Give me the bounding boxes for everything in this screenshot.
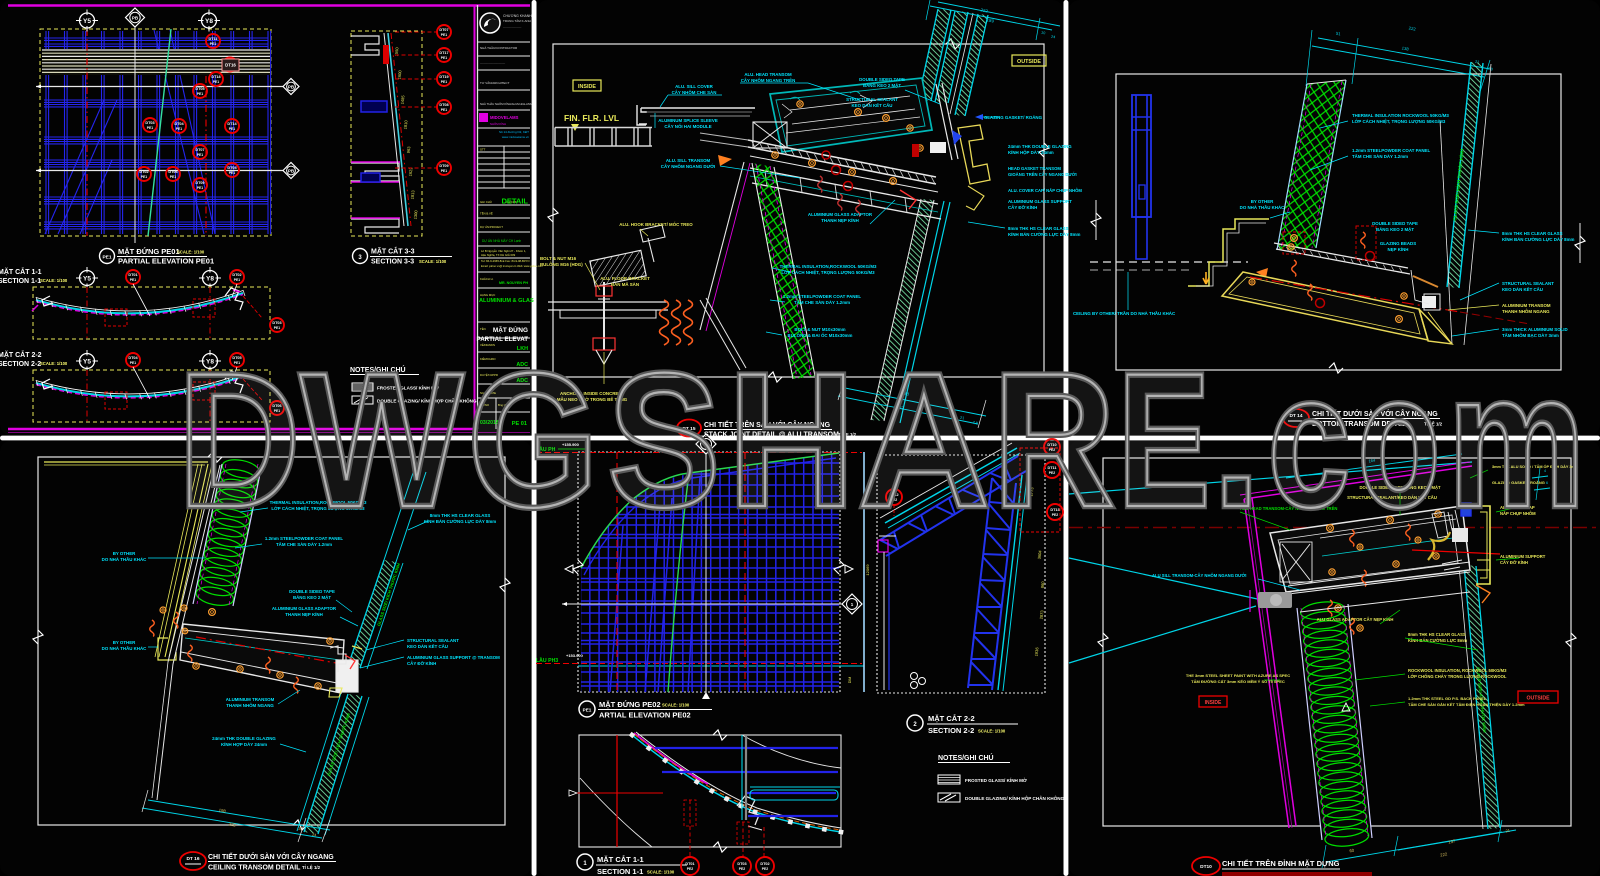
svg-text:PE1: PE1 — [197, 153, 204, 157]
svg-text:PE1: PE1 — [141, 175, 148, 179]
svg-text:BY OTHER: BY OTHER — [113, 551, 136, 556]
svg-text:DT04: DT04 — [227, 166, 237, 170]
svg-text:INSIDE: INSIDE — [578, 84, 596, 90]
svg-text:21: 21 — [1505, 829, 1510, 834]
svg-text:CEILING TRANSOM DETAIL: CEILING TRANSOM DETAIL — [208, 865, 301, 872]
svg-text:SCALE: 1/100: SCALE: 1/100 — [419, 259, 447, 264]
svg-text:ALU SILL TRANSOM-CÂY NHÔM NGAN: ALU SILL TRANSOM-CÂY NHÔM NGANG DƯỚI — [1152, 573, 1246, 578]
svg-text:THANH NẸP KÍNH: THANH NẸP KÍNH — [821, 218, 859, 223]
svg-text:DT18: DT18 — [211, 75, 220, 79]
svg-text:MẶT ĐỨNG: MẶT ĐỨNG — [493, 325, 528, 334]
svg-text:KÍNH HỢP DÀY 24mm: KÍNH HỢP DÀY 24mm — [221, 742, 267, 747]
svg-text:PB: PB — [132, 16, 139, 21]
svg-text:MIDOVELAMS: MIDOVELAMS — [490, 115, 519, 120]
svg-text:PE1: PE1 — [213, 80, 220, 84]
svg-text:CÂY NHÔM CHE SÀN: CÂY NHÔM CHE SÀN — [672, 90, 717, 95]
svg-text:DT17: DT17 — [439, 51, 448, 55]
svg-text:BĂNG KEO 2 MẶT: BĂNG KEO 2 MẶT — [1376, 227, 1414, 232]
svg-text:BĂNG KEO 2 MẶT: BĂNG KEO 2 MẶT — [293, 595, 331, 600]
svg-text:THERMAL INSULATION,ROCKWOOL 50: THERMAL INSULATION,ROCKWOOL 50KG/M3 — [780, 264, 877, 269]
svg-text:MẶT ĐỨNG PE01: MẶT ĐỨNG PE01 — [118, 247, 180, 256]
svg-text:SCALE: 1/100: SCALE: 1/100 — [978, 729, 1006, 734]
svg-text:BOLT & NUT M16: BOLT & NUT M16 — [540, 256, 577, 261]
svg-text:NHÔM KÍNH: NHÔM KÍNH — [490, 121, 506, 126]
svg-text:DT03: DT03 — [272, 321, 281, 325]
svg-text:D: D — [178, 334, 300, 547]
svg-text:CÂY ĐỠ KÍNH: CÂY ĐỠ KÍNH — [1008, 205, 1037, 210]
svg-text:SCALE: 1/100: SCALE: 1/100 — [647, 870, 675, 875]
svg-text:OUTSIDE: OUTSIDE — [1526, 696, 1550, 702]
svg-text:FROSTED GLASS/ KÍNH MỜ: FROSTED GLASS/ KÍNH MỜ — [965, 776, 1027, 783]
svg-text:BY OTHER: BY OTHER — [113, 640, 136, 645]
svg-text:PE1: PE1 — [130, 361, 137, 365]
svg-text:DT07: DT07 — [195, 148, 204, 152]
svg-text:PE1: PE1 — [234, 278, 241, 282]
svg-text:12069: 12069 — [865, 564, 870, 576]
svg-text:STRUCTURAL SEALANT: STRUCTURAL SEALANT — [1502, 281, 1554, 286]
svg-text:MẶT ĐỨNG PE02: MẶT ĐỨNG PE02 — [599, 700, 661, 709]
svg-text:SECTION 1-1: SECTION 1-1 — [0, 278, 41, 285]
svg-text:24: 24 — [1051, 35, 1056, 40]
svg-text:DT19: DT19 — [439, 75, 448, 79]
svg-text:SCALE: 1/100: SCALE: 1/100 — [662, 703, 690, 708]
svg-text:.: . — [1213, 334, 1260, 547]
svg-text:___________: ___________ — [502, 24, 522, 28]
svg-text:24mm THK DOUBLE GLAZING: 24mm THK DOUBLE GLAZING — [1008, 144, 1072, 149]
svg-text:PE1: PE1 — [274, 326, 281, 330]
svg-text:THERMAL INSULATION ROCKWOOL 50: THERMAL INSULATION ROCKWOOL 50KG/M3 — [1352, 113, 1449, 118]
svg-text:TẤM CHE SÀN DÀY 1.2mm: TẤM CHE SÀN DÀY 1.2mm — [794, 300, 850, 305]
svg-text:2873: 2873 — [1039, 609, 1045, 619]
svg-text:MR. NGUYEN PH: MR. NGUYEN PH — [499, 281, 528, 285]
svg-text:Y5: Y5 — [83, 359, 91, 366]
svg-text:STRUCTURAL SEALANT: STRUCTURAL SEALANT — [846, 97, 898, 102]
svg-text:KEO DÁN KẾT CẤU: KEO DÁN KẾT CẤU — [852, 103, 893, 108]
svg-text:DT01: DT01 — [685, 862, 694, 866]
svg-text:ALUMINIUM SUPPORT: ALUMINIUM SUPPORT — [1500, 554, 1546, 559]
svg-text:DT01: DT01 — [128, 273, 137, 277]
svg-text:8mm THK HS CLEAR GLASS: 8mm THK HS CLEAR GLASS — [1008, 226, 1069, 231]
svg-text:1.2mm THK STEEL GD P.S. BACK P: 1.2mm THK STEEL GD P.S. BACK PANEL — [1408, 696, 1487, 701]
svg-text:CÂY ĐỠ KÍNH: CÂY ĐỠ KÍNH — [1500, 560, 1528, 565]
svg-text:ARTIAL ELEVATION PE02: ARTIAL ELEVATION PE02 — [599, 711, 691, 720]
svg-text:1813: 1813 — [410, 189, 416, 199]
svg-text:GIOĂNG TRÊN CÂY NGANG DƯỚI: GIOĂNG TRÊN CÂY NGANG DƯỚI — [1008, 172, 1077, 177]
svg-text:CHƯƠNG KHANH: CHƯƠNG KHANH — [503, 14, 532, 18]
svg-text:THE 3mm STEEL SHEET PAINT WITH: THE 3mm STEEL SHEET PAINT WITH AZURE AS … — [1186, 673, 1290, 678]
svg-text:NHÀ THẦU/CONTRACTOR: NHÀ THẦU/CONTRACTOR — [480, 46, 518, 50]
svg-text:DETAIL: DETAIL — [501, 197, 528, 206]
svg-text:THANH NẸP KÍNH: THANH NẸP KÍNH — [285, 612, 323, 617]
svg-text:CÂY ĐỠ KÍNH: CÂY ĐỠ KÍNH — [407, 661, 436, 666]
svg-text:ALU. HOOK BRACKET/ MÓC TREO: ALU. HOOK BRACKET/ MÓC TREO — [619, 222, 693, 227]
svg-text:LỚP CHỐNG CHÁY TRONG LƯỢNG ROC: LỚP CHỐNG CHÁY TRONG LƯỢNG ROCKWOOL — [1408, 674, 1507, 679]
svg-text:Y5: Y5 — [83, 276, 91, 283]
svg-text:PE1: PE1 — [229, 127, 236, 131]
svg-text:A: A — [858, 334, 990, 547]
svg-text:DT04: DT04 — [128, 356, 138, 360]
svg-text:ALUMINIUM TRANSOM: ALUMINIUM TRANSOM — [1502, 303, 1551, 308]
svg-text:KÍNH BÁN CƯỜNG LỰC DÀY 8mm: KÍNH BÁN CƯỜNG LỰC DÀY 8mm — [1502, 237, 1575, 242]
svg-text:Tel: 84-9-2965-B-E Fax: 84-9-: Tel: 84-9-2965-B-E Fax: 84-9-08-B3YO — [481, 259, 530, 263]
svg-text:SCALE: 1/100: SCALE: 1/100 — [177, 250, 205, 255]
svg-text:SCALE: 1/100: SCALE: 1/100 — [40, 278, 68, 283]
svg-text:PE1: PE1 — [441, 80, 448, 84]
svg-text:PE1: PE1 — [441, 33, 448, 37]
svg-text:PE1: PE1 — [102, 255, 111, 261]
svg-text:Y5: Y5 — [83, 18, 91, 25]
svg-text:DT02: DT02 — [139, 170, 148, 174]
svg-text:LỚP CÁCH NHIỆT, TRỌNG LƯỢNG 50: LỚP CÁCH NHIỆT, TRỌNG LƯỢNG 50KG/M3 — [781, 270, 875, 275]
svg-text:TRUNG TÂM K.ANH: TRUNG TÂM K.ANH — [503, 18, 531, 23]
svg-text:PE2: PE2 — [762, 867, 769, 871]
svg-text:PE1: PE1 — [176, 127, 183, 131]
svg-text:DT08: DT08 — [439, 103, 448, 107]
svg-text:TÊN: TÊN — [480, 326, 486, 331]
svg-text:DOUBLE SIDED TAPE: DOUBLE SIDED TAPE — [289, 589, 335, 594]
svg-text:24: 24 — [312, 833, 317, 838]
svg-text:BULÔNG M16 (HDG): BULÔNG M16 (HDG) — [540, 262, 583, 267]
svg-text:TÊN B.VẼ: TÊN B.VẼ — [480, 211, 493, 216]
svg-text:Y8: Y8 — [206, 276, 214, 283]
svg-text:PB: PB — [288, 85, 295, 90]
svg-text:MẶT CẮT 1-1: MẶT CẮT 1-1 — [597, 855, 644, 864]
svg-text:ALUMINIUM TRANSOM: ALUMINIUM TRANSOM — [226, 697, 275, 702]
svg-text:KÍNH BÁN CƯỜNG LỰC 8mm: KÍNH BÁN CƯỜNG LỰC 8mm — [1408, 638, 1467, 643]
svg-text:PE1: PE1 — [441, 108, 448, 112]
svg-text:SCALE: 1/100: SCALE: 1/100 — [40, 361, 68, 366]
svg-text:1810: 1810 — [403, 119, 409, 129]
svg-text:KÍNH BÁN CƯỜNG LỰC DÀY 8mm: KÍNH BÁN CƯỜNG LỰC DÀY 8mm — [1008, 232, 1081, 237]
svg-text:BĂNG KEO 2 MẶT: BĂNG KEO 2 MẶT — [863, 83, 901, 88]
svg-text:MẶT CẮT 2-2: MẶT CẮT 2-2 — [0, 350, 42, 359]
svg-text:CÂY NHÔM NGANG TRÊN: CÂY NHÔM NGANG TRÊN — [741, 78, 796, 83]
svg-text:BOLT & NUT M10x30mm: BOLT & NUT M10x30mm — [794, 327, 845, 332]
svg-text:3mm THICK ALUMINIUM SOLID: 3mm THICK ALUMINIUM SOLID — [1502, 327, 1568, 332]
svg-text:DT06: DT06 — [168, 170, 177, 174]
svg-text:OUTSIDE: OUTSIDE — [1017, 59, 1041, 65]
svg-text:1.2mm STEELPOWDER COAT PANEL: 1.2mm STEELPOWDER COAT PANEL — [783, 294, 861, 299]
svg-text:o: o — [1358, 334, 1440, 547]
svg-text:FIN. FLR. LVL: FIN. FLR. LVL — [564, 113, 619, 123]
svg-text:1936: 1936 — [1034, 646, 1040, 656]
svg-text:Hậu Nghĩa, TX KH GIÁ 009: Hậu Nghĩa, TX KH GIÁ 009 — [481, 253, 516, 257]
svg-text:m: m — [1448, 334, 1585, 547]
svg-text:ALUMINIUM & GLAS: ALUMINIUM & GLAS — [479, 298, 534, 304]
svg-text:NẸP KÍNH: NẸP KÍNH — [1388, 247, 1409, 252]
svg-text:DT09: DT09 — [195, 181, 204, 185]
svg-text:PE1: PE1 — [583, 708, 592, 713]
svg-text:DO NHÀ THẦU KHÁC: DO NHÀ THẦU KHÁC — [1240, 205, 1285, 210]
svg-text:KEO DÁN KẾT CẤU: KEO DÁN KẾT CẤU — [407, 644, 448, 649]
svg-text:+153.900: +153.900 — [566, 653, 584, 658]
svg-text:DT03: DT03 — [145, 121, 154, 125]
svg-text:8mm THK HS CLEAR GLASS: 8mm THK HS CLEAR GLASS — [1408, 632, 1466, 637]
svg-text:ALU GLASS ADAPTOR CÂY NẸP KÍNH: ALU GLASS ADAPTOR CÂY NẸP KÍNH — [1317, 617, 1394, 622]
svg-text:STRUCTURAL SEALANT: STRUCTURAL SEALANT — [407, 638, 459, 643]
svg-text:CÂY NHÔM NGANG DƯỚI: CÂY NHÔM NGANG DƯỚI — [661, 164, 715, 169]
svg-text:SECTION 2-2: SECTION 2-2 — [0, 361, 41, 368]
svg-text:DT 16: DT 16 — [186, 856, 199, 862]
svg-text:KEO DÁN KẾT CẤU: KEO DÁN KẾT CẤU — [1502, 287, 1543, 292]
svg-text:NOTES/GHI CHÚ: NOTES/GHI CHÚ — [938, 753, 994, 762]
svg-text:LỚP CÁCH NHIỆT, TRỌNG LƯỢNG 50: LỚP CÁCH NHIỆT, TRỌNG LƯỢNG 50KG/M3 — [1352, 119, 1446, 124]
svg-text:DOUBLE SIDED TAPE: DOUBLE SIDED TAPE — [1372, 221, 1418, 226]
svg-text:DT09: DT09 — [439, 164, 448, 168]
svg-text:1.2mm STEELPOWDER COAT PANEL: 1.2mm STEELPOWDER COAT PANEL — [1352, 148, 1430, 153]
svg-text:ALUMINIUM GLASS SUPPORT @ TRAN: ALUMINIUM GLASS SUPPORT @ TRANSOM — [407, 655, 500, 660]
svg-text:HEAD GASKET TRANSOM: HEAD GASKET TRANSOM — [1008, 166, 1061, 171]
svg-text:E: E — [1118, 334, 1210, 547]
svg-text:TẤM CHE SÀN GẮN KẾT TÂM ĐIỆN H: TẤM CHE SÀN GẮN KẾT TÂM ĐIỆN HOÀN THIỆN … — [1408, 702, 1525, 707]
svg-text:PE1: PE1 — [229, 171, 236, 175]
svg-text:PARTIAL ELEVATION PE01: PARTIAL ELEVATION PE01 — [118, 257, 214, 266]
svg-text:CEILING BY OTHER/ TRẦN DO NHÀ: CEILING BY OTHER/ TRẦN DO NHÀ THẦU KHÁC — [1073, 311, 1176, 316]
svg-text:GLAZING BEADS: GLAZING BEADS — [1380, 241, 1416, 246]
svg-text:PE1: PE1 — [210, 42, 217, 46]
svg-text:DT02: DT02 — [760, 862, 769, 866]
svg-text:ROCKWOOL INSULATION, ROCKWOOL: ROCKWOOL INSULATION, ROCKWOOL 50KG/M3 — [1408, 668, 1507, 673]
svg-text:DO NHÀ THẦU KHÁC: DO NHÀ THẦU KHÁC — [102, 557, 147, 562]
svg-text:DO NHÀ THẦU KHÁC: DO NHÀ THẦU KHÁC — [102, 646, 147, 651]
svg-text:DOUBLE SIDED TAPE: DOUBLE SIDED TAPE — [859, 77, 905, 82]
svg-text:THANH NHÔM NGANG: THANH NHÔM NGANG — [1502, 309, 1550, 314]
svg-text:1600: 1600 — [397, 69, 403, 79]
svg-text:G: G — [468, 334, 598, 547]
svg-text:GHI CHÚ: GHI CHÚ — [480, 199, 492, 204]
svg-text:_______________: _______________ — [479, 60, 505, 64]
svg-text:INSIDE: INSIDE — [1205, 700, 1222, 706]
svg-text:BẢN MÃ SÀN: BẢN MÃ SÀN — [611, 282, 639, 287]
svg-text:TẤM ĐƯỜNG CẮT 3mm KÉO MỀM Ý S: TẤM ĐƯỜNG CẮT 3mm KÉO MỀM Ý SỐ 75 SPEC — [1191, 679, 1285, 684]
svg-text:PB: PB — [288, 169, 295, 174]
svg-text:Y8: Y8 — [205, 18, 213, 25]
svg-text:CHI TIẾT TRÊN ĐỈNH MẶT DỰNG: CHI TIẾT TRÊN ĐỈNH MẶT DỰNG — [1222, 858, 1340, 868]
svg-text:DT05: DT05 — [195, 87, 204, 91]
svg-text:PE1: PE1 — [441, 169, 448, 173]
svg-text:BY OTHER: BY OTHER — [1251, 199, 1274, 204]
svg-text:S: S — [608, 334, 720, 547]
svg-text:DT11: DT11 — [208, 37, 217, 41]
svg-text:TỈ LỆ 1/2: TỈ LỆ 1/2 — [302, 865, 321, 870]
svg-text:10: 10 — [1041, 31, 1046, 36]
svg-text:PE1: PE1 — [130, 278, 137, 282]
svg-text:PE1: PE1 — [147, 126, 154, 130]
svg-text:ALU. SILL TRANSOM: ALU. SILL TRANSOM — [666, 158, 711, 163]
svg-text:DỰ ÁN/PROJECT: DỰ ÁN/PROJECT — [480, 225, 503, 229]
svg-text:8mm THK HS CLEAR GLASS: 8mm THK HS CLEAR GLASS — [1502, 231, 1563, 236]
svg-text:DOUBLE GLAZING/ KÍNH HỘP CHÂN: DOUBLE GLAZING/ KÍNH HỘP CHÂN KHÔNG — [965, 794, 1065, 801]
svg-text:KHÁCH H.: KHÁCH H. — [480, 277, 494, 281]
svg-text:PE2: PE2 — [687, 867, 694, 871]
svg-text:H: H — [728, 334, 855, 547]
svg-text:TƯ VẤN/ARCHITECT: TƯ VẤN/ARCHITECT — [480, 80, 510, 85]
svg-text:ALUMINUM SPLICE SLEEVE: ALUMINUM SPLICE SLEEVE — [658, 118, 718, 123]
svg-text:PE2: PE2 — [739, 867, 746, 871]
svg-text:1485: 1485 — [400, 94, 406, 104]
svg-text:DỰ ÁN NHÀ MÁY CH Lạnh: DỰ ÁN NHÀ MÁY CH Lạnh — [482, 239, 521, 243]
svg-text:DT02: DT02 — [232, 273, 241, 277]
svg-text:ALU. COVER CAP/ NẮP CHỤP NHÔM: ALU. COVER CAP/ NẮP CHỤP NHÔM — [1008, 188, 1082, 193]
svg-text:DT10: DT10 — [1200, 864, 1212, 870]
svg-text:R: R — [993, 334, 1115, 547]
svg-text:GLAZING GASKET/ ROĂNG: GLAZING GASKET/ ROĂNG — [984, 115, 1043, 120]
svg-text:3604: 3604 — [1037, 549, 1043, 559]
svg-text:MẶT CẮT 1-1: MẶT CẮT 1-1 — [0, 267, 42, 276]
svg-text:HẠNG MỤC: HẠNG MỤC — [480, 293, 495, 297]
svg-text:Email: yahoo.vn@ tructuyen.tn: Email: yahoo.vn@ tructuyen.tn Web: www.y… — [481, 264, 543, 268]
svg-text:MẶT CẮT 3-3: MẶT CẮT 3-3 — [371, 247, 415, 256]
svg-text:MẶT CẮT 2-2: MẶT CẮT 2-2 — [928, 714, 975, 723]
svg-text:ALUMINIUM GLASS SUPPORT: ALUMINIUM GLASS SUPPORT — [1008, 199, 1072, 204]
svg-text:SECTION 2-2: SECTION 2-2 — [928, 726, 974, 735]
svg-text:STT: STT — [480, 148, 486, 152]
svg-text:THANH NHÔM NGANG: THANH NHÔM NGANG — [226, 703, 274, 708]
svg-text:DT14: DT14 — [227, 122, 237, 126]
svg-text:DT07: DT07 — [439, 28, 448, 32]
svg-text:PE1: PE1 — [197, 92, 204, 96]
svg-text:DT16: DT16 — [225, 63, 236, 68]
svg-text:SECTION 1-1: SECTION 1-1 — [597, 867, 643, 876]
svg-text:ALU. HEAD TRANSOM: ALU. HEAD TRANSOM — [744, 72, 792, 77]
svg-text:PE1: PE1 — [441, 56, 448, 60]
svg-text:DT04: DT04 — [174, 122, 184, 126]
svg-text:PE1: PE1 — [197, 186, 204, 190]
svg-text:PE1: PE1 — [170, 175, 177, 179]
svg-text:W: W — [300, 334, 464, 547]
svg-text:ALU. SILL COVER: ALU. SILL COVER — [675, 84, 714, 89]
svg-text:ALUMINIUM GLASS ADAPTOR: ALUMINIUM GLASS ADAPTOR — [808, 212, 873, 217]
svg-text:CÂY NỐI HAI MODULE: CÂY NỐI HAI MODULE — [664, 124, 711, 129]
svg-text:www.midovelams.vn: www.midovelams.vn — [502, 135, 530, 139]
svg-text:TẤM CHE SÀN DÀY 1.2mm: TẤM CHE SÀN DÀY 1.2mm — [1352, 154, 1408, 159]
svg-text:c: c — [1268, 334, 1350, 547]
svg-text:1300: 1300 — [413, 209, 419, 219]
svg-text:SECTION 3-3: SECTION 3-3 — [371, 259, 414, 266]
svg-text:DT03: DT03 — [737, 862, 746, 866]
svg-text:ALUMINIUM GLASS ADAPTOR: ALUMINIUM GLASS ADAPTOR — [272, 606, 337, 611]
svg-text:Số 14 đường D2, KĐT: Số 14 đường D2, KĐT — [499, 130, 529, 134]
svg-text:ALU. FLOOR BRACKET: ALU. FLOOR BRACKET — [600, 276, 650, 281]
svg-text:KÍNH HỘP DÀY 24mm: KÍNH HỘP DÀY 24mm — [1008, 150, 1054, 155]
svg-text:24mm THK DOUBLE GLAZING: 24mm THK DOUBLE GLAZING — [212, 736, 276, 741]
svg-text:NHÀ THẦU NHÔM KÍNH/ALUM.&GLASS: NHÀ THẦU NHÔM KÍNH/ALUM.&GLASS — [480, 101, 532, 106]
svg-text:DIM: DIM — [848, 677, 852, 684]
